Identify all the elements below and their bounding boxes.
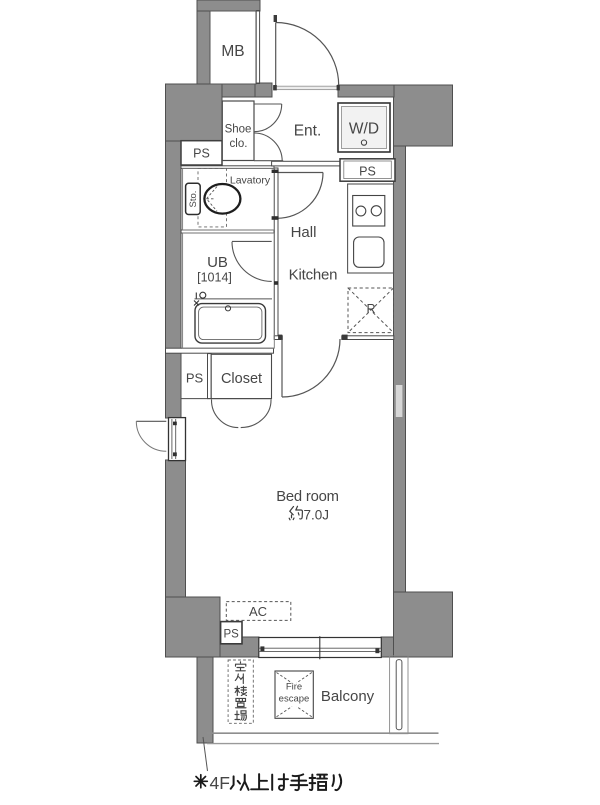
svg-text:PS: PS (224, 628, 240, 640)
svg-text:W/D: W/D (349, 121, 379, 138)
svg-text:PS: PS (359, 164, 376, 178)
svg-text:UB: UB (207, 254, 228, 271)
svg-text:Bed room: Bed room (276, 489, 339, 505)
svg-text:clo.: clo. (230, 138, 248, 150)
svg-text:PS: PS (186, 370, 204, 385)
svg-text:Kitchen: Kitchen (289, 266, 338, 283)
svg-text:PS: PS (193, 146, 210, 160)
svg-text:Ent.: Ent. (294, 123, 322, 140)
svg-text:Lavatory: Lavatory (230, 174, 271, 186)
svg-text:4F: 4F (210, 773, 230, 793)
svg-text:Closet: Closet (221, 371, 262, 387)
svg-text:Balcony: Balcony (321, 688, 375, 705)
svg-text:[1014]: [1014] (197, 271, 232, 285)
svg-text:Sto.: Sto. (188, 191, 199, 208)
svg-text:MB: MB (221, 43, 244, 60)
svg-text:Fire: Fire (286, 682, 302, 693)
svg-text:Shoe: Shoe (225, 124, 252, 136)
svg-text:Hall: Hall (291, 224, 317, 241)
svg-text:7.0J: 7.0J (304, 508, 330, 523)
svg-text:escape: escape (279, 694, 310, 705)
svg-text:R: R (366, 302, 375, 316)
svg-text:AC: AC (249, 604, 267, 619)
